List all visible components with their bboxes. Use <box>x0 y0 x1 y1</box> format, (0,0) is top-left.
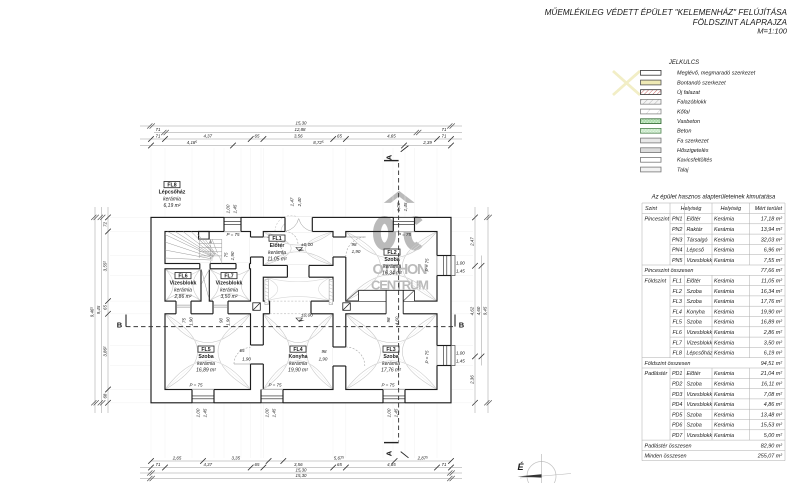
svg-text:FÖLDSZINT ALAPRAJZA: FÖLDSZINT ALAPRAJZA <box>693 17 788 27</box>
svg-text:Hőszigetelés: Hőszigetelés <box>677 148 709 154</box>
svg-text:1,90: 1,90 <box>189 317 194 326</box>
svg-text:16,89 m²: 16,89 m² <box>761 320 782 326</box>
svg-text:FL7: FL7 <box>224 273 233 279</box>
svg-text:75: 75 <box>224 252 229 258</box>
svg-text:Helyiség: Helyiség <box>681 206 702 212</box>
svg-text:21,04 m²: 21,04 m² <box>760 371 782 377</box>
svg-text:B: B <box>117 321 123 330</box>
svg-text:15,30: 15,30 <box>296 468 308 473</box>
svg-text:9,45: 9,45 <box>483 306 488 315</box>
svg-text:7,08 m²: 7,08 m² <box>764 392 782 398</box>
svg-text:7,55 m²: 7,55 m² <box>764 258 782 264</box>
svg-text:PN2: PN2 <box>672 227 683 233</box>
svg-text:32,03 m²: 32,03 m² <box>761 237 782 243</box>
svg-text:Kerámia: Kerámia <box>714 258 734 264</box>
svg-text:kerámia: kerámia <box>220 287 238 293</box>
svg-text:11,05 m²: 11,05 m² <box>761 279 782 285</box>
svg-text:68: 68 <box>103 393 108 398</box>
svg-text:FL3: FL3 <box>673 299 682 305</box>
svg-text:FL4: FL4 <box>673 309 682 315</box>
svg-text:Kerámia: Kerámia <box>714 217 734 223</box>
svg-text:6,19 m²: 6,19 m² <box>764 351 782 357</box>
svg-text:Mért terület: Mért terület <box>755 206 783 212</box>
svg-text:71: 71 <box>156 127 161 132</box>
svg-text:4,18⁵: 4,18⁵ <box>187 140 198 145</box>
svg-text:PD7: PD7 <box>672 433 683 439</box>
svg-text:3,50 m²: 3,50 m² <box>221 294 238 300</box>
svg-text:FL5: FL5 <box>673 320 683 326</box>
svg-text:2,40: 2,40 <box>297 197 302 207</box>
svg-text:M=1:100: M=1:100 <box>757 27 788 36</box>
svg-text:19,90 m²: 19,90 m² <box>761 309 782 315</box>
svg-text:FL8: FL8 <box>673 351 682 357</box>
svg-text:15,53 m²: 15,53 m² <box>761 423 782 429</box>
svg-text:JELKULCS: JELKULCS <box>668 60 699 66</box>
svg-text:71: 71 <box>156 134 161 139</box>
svg-text:Előtér: Előtér <box>270 243 285 249</box>
svg-text:Vizesblokk: Vizesblokk <box>687 392 713 398</box>
svg-text:Kerámia: Kerámia <box>714 392 734 398</box>
svg-text:Vizesblokk: Vizesblokk <box>687 258 713 264</box>
svg-text:PD5: PD5 <box>672 412 683 418</box>
svg-text:Kerámia: Kerámia <box>714 227 734 233</box>
svg-text:71: 71 <box>442 127 447 132</box>
svg-text:65: 65 <box>103 305 108 310</box>
svg-text:kerámia: kerámia <box>197 361 215 367</box>
svg-text:90: 90 <box>219 318 224 324</box>
svg-text:Kerámia: Kerámia <box>714 248 734 254</box>
svg-text:PD3: PD3 <box>672 392 683 398</box>
svg-text:Lépcső: Lépcső <box>687 248 705 254</box>
svg-text:Falazóblokk: Falazóblokk <box>677 100 707 106</box>
svg-text:8,72⁵: 8,72⁵ <box>313 140 324 145</box>
svg-text:Kavicsfeltöltés: Kavicsfeltöltés <box>677 158 712 164</box>
svg-text:2,86 m²: 2,86 m² <box>174 294 192 300</box>
svg-text:1,45: 1,45 <box>232 204 237 213</box>
svg-text:Kerámia: Kerámia <box>714 237 734 243</box>
svg-text:12,88: 12,88 <box>295 127 307 132</box>
svg-text:Kerámia: Kerámia <box>714 279 734 285</box>
svg-text:72: 72 <box>103 221 108 226</box>
svg-text:2,65: 2,65 <box>172 456 182 461</box>
svg-text:Kerámia: Kerámia <box>714 371 734 377</box>
svg-text:FL8: FL8 <box>167 182 176 188</box>
svg-text:PN3: PN3 <box>672 237 683 243</box>
svg-text:16,11 m²: 16,11 m² <box>761 382 782 388</box>
svg-text:255,07 m²: 255,07 m² <box>757 454 782 460</box>
svg-text:Vizesblokk: Vizesblokk <box>687 433 713 439</box>
svg-text:Kerámia: Kerámia <box>714 320 734 326</box>
svg-text:1,90: 1,90 <box>226 317 231 326</box>
svg-text:Kerámia: Kerámia <box>714 309 734 315</box>
svg-text:65: 65 <box>337 462 342 467</box>
svg-text:16,34 m²: 16,34 m² <box>761 289 782 295</box>
svg-text:98: 98 <box>321 349 327 354</box>
svg-text:PD4: PD4 <box>672 402 683 408</box>
svg-text:PN1: PN1 <box>672 217 683 223</box>
svg-text:Kerámia: Kerámia <box>714 299 734 305</box>
svg-text:Kerámia: Kerámia <box>714 351 734 357</box>
svg-text:PD2: PD2 <box>672 382 683 388</box>
svg-text:Társalgó: Társalgó <box>687 237 708 243</box>
svg-text:1,00: 1,00 <box>387 408 392 417</box>
svg-text:Vizesblokk: Vizesblokk <box>216 281 243 287</box>
svg-text:Kerámia: Kerámia <box>714 402 734 408</box>
svg-text:1,90: 1,90 <box>352 249 361 254</box>
svg-text:65: 65 <box>255 134 260 139</box>
svg-text:Pinceszint: Pinceszint <box>645 217 670 223</box>
svg-text:Padlástér: Padlástér <box>645 371 668 377</box>
svg-text:16,34 m²: 16,34 m² <box>382 270 402 276</box>
svg-text:FL1: FL1 <box>272 236 281 242</box>
svg-text:PD1: PD1 <box>672 371 683 377</box>
svg-text:1,45: 1,45 <box>403 202 408 211</box>
svg-text:3,50 m²: 3,50 m² <box>764 340 782 346</box>
svg-text:2,47: 2,47 <box>470 237 475 247</box>
svg-text:4,65: 4,65 <box>387 134 396 139</box>
svg-text:1,00: 1,00 <box>456 351 465 356</box>
svg-text:5,67⁵: 5,67⁵ <box>334 456 345 461</box>
svg-text:71: 71 <box>156 462 161 467</box>
svg-text:Szoba: Szoba <box>384 257 399 263</box>
svg-text:P = 75: P = 75 <box>190 383 203 388</box>
svg-text:Bontandó szerkezet: Bontandó szerkezet <box>677 80 726 86</box>
svg-text:Beton: Beton <box>677 129 691 135</box>
svg-text:Földszint: Földszint <box>645 279 667 285</box>
svg-text:2,39: 2,39 <box>422 140 432 145</box>
svg-text:FL6: FL6 <box>178 273 187 279</box>
svg-text:1,00: 1,00 <box>456 261 465 266</box>
svg-text:1,90: 1,90 <box>242 357 251 362</box>
svg-text:kerámia: kerámia <box>174 287 192 293</box>
svg-text:3,56: 3,56 <box>294 462 303 467</box>
svg-text:Kerámia: Kerámia <box>714 382 734 388</box>
svg-text:1,45: 1,45 <box>456 359 465 364</box>
svg-text:5,00 m²: 5,00 m² <box>764 433 782 439</box>
svg-text:Pinceszint összesen: Pinceszint összesen <box>645 268 694 274</box>
svg-text:MŰEMLÉKILEG VÉDETT ÉPÜLET "KEL: MŰEMLÉKILEG VÉDETT ÉPÜLET "KELEMENHÁZ" F… <box>545 7 788 17</box>
svg-text:FL2: FL2 <box>387 250 396 256</box>
svg-text:PD6: PD6 <box>672 423 683 429</box>
svg-text:1,45: 1,45 <box>456 269 465 274</box>
svg-text:Meglévő, megmaradó szerkezet: Meglévő, megmaradó szerkezet <box>677 71 756 77</box>
svg-text:P = 75: P = 75 <box>425 258 430 271</box>
svg-text:Szint: Szint <box>645 206 657 212</box>
svg-text:Szoba: Szoba <box>198 354 213 360</box>
svg-text:2,86 m²: 2,86 m² <box>763 330 782 336</box>
svg-text:P = 75: P = 75 <box>398 232 411 237</box>
svg-text:9,46⁵: 9,46⁵ <box>90 307 95 318</box>
svg-text:Helyiség: Helyiség <box>720 206 741 212</box>
svg-text:2,36: 2,36 <box>470 375 475 385</box>
svg-text:B: B <box>459 321 465 330</box>
svg-text:FL3: FL3 <box>386 347 395 353</box>
svg-text:Fa szerkezet: Fa szerkezet <box>677 138 709 144</box>
svg-text:65: 65 <box>239 348 245 353</box>
svg-text:Minden összesen: Minden összesen <box>645 454 687 460</box>
svg-text:Az épület hasznos alapterülete: Az épület hasznos alapterületeinek kimut… <box>651 195 776 201</box>
svg-text:77,66 m²: 77,66 m² <box>761 268 782 274</box>
svg-text:82,90 m²: 82,90 m² <box>761 443 782 449</box>
svg-text:Kerámia: Kerámia <box>714 412 734 418</box>
svg-text:1,90: 1,90 <box>230 251 235 260</box>
svg-text:FL7: FL7 <box>673 340 683 346</box>
svg-text:9,45: 9,45 <box>96 305 101 314</box>
svg-text:71: 71 <box>442 462 447 467</box>
svg-text:P = 75: P = 75 <box>269 383 282 388</box>
svg-text:4,60: 4,60 <box>476 306 481 315</box>
svg-text:Kerámia: Kerámia <box>714 423 734 429</box>
svg-text:Szoba: Szoba <box>687 412 702 418</box>
svg-text:Konyha: Konyha <box>288 354 307 360</box>
svg-text:4,37: 4,37 <box>204 134 213 139</box>
svg-text:98: 98 <box>386 317 391 323</box>
svg-text:4,37: 4,37 <box>204 462 213 467</box>
svg-text:15,30: 15,30 <box>296 473 308 478</box>
svg-text:Raktár: Raktár <box>687 227 703 233</box>
svg-text:Szoba: Szoba <box>687 289 702 295</box>
svg-text:P = 75: P = 75 <box>425 350 430 363</box>
svg-text:FL5: FL5 <box>201 347 210 353</box>
svg-text:3,55²: 3,55² <box>103 261 108 272</box>
svg-text:Vizesblokk: Vizesblokk <box>687 402 713 408</box>
svg-text:17,76 m²: 17,76 m² <box>761 299 782 305</box>
svg-text:13,48 m²: 13,48 m² <box>761 412 782 418</box>
svg-text:Szoba: Szoba <box>383 354 398 360</box>
svg-text:11,05 m²: 11,05 m² <box>267 256 287 262</box>
svg-text:A: A <box>385 450 394 456</box>
svg-text:Új falazat: Új falazat <box>677 89 700 96</box>
svg-text:Talaj: Talaj <box>677 167 689 173</box>
svg-text:FL1: FL1 <box>673 279 682 285</box>
svg-text:kerámia: kerámia <box>163 196 181 202</box>
svg-text:Kőfal: Kőfal <box>677 109 690 115</box>
svg-text:É: É <box>517 462 524 472</box>
svg-text:FL2: FL2 <box>673 289 682 295</box>
svg-text:Előtér: Előtér <box>687 371 701 377</box>
svg-text:FL6: FL6 <box>673 330 682 336</box>
svg-text:98: 98 <box>351 242 357 247</box>
svg-text:94,51 m²: 94,51 m² <box>761 361 782 367</box>
svg-text:Előtér: Előtér <box>687 279 701 285</box>
svg-text:Kerámia: Kerámia <box>714 330 734 336</box>
svg-text:3,35: 3,35 <box>232 456 241 461</box>
svg-text:Szoba: Szoba <box>687 423 702 429</box>
svg-text:kerámia: kerámia <box>268 250 286 256</box>
svg-text:Vasbeton: Vasbeton <box>677 119 700 125</box>
svg-text:Vizesblokk: Vizesblokk <box>687 330 713 336</box>
svg-text:Földszint összesen: Földszint összesen <box>645 361 691 367</box>
svg-text:PN5: PN5 <box>672 258 683 264</box>
svg-text:6,19 m²: 6,19 m² <box>164 203 181 209</box>
svg-text:6,96 m²: 6,96 m² <box>764 248 782 254</box>
svg-text:Vizesblokk: Vizesblokk <box>687 340 713 346</box>
svg-text:1,00: 1,00 <box>196 408 201 417</box>
svg-text:19,90 m²: 19,90 m² <box>288 367 308 373</box>
svg-text:Szoba: Szoba <box>687 382 702 388</box>
svg-text:Szoba: Szoba <box>687 299 702 305</box>
svg-text:15,30: 15,30 <box>296 120 308 125</box>
svg-text:Előtér: Előtér <box>687 217 701 223</box>
svg-text:P = 75: P = 75 <box>227 232 240 237</box>
svg-text:4,62: 4,62 <box>470 306 475 315</box>
svg-text:±0,00: ±0,00 <box>301 313 313 319</box>
svg-text:65: 65 <box>337 134 342 139</box>
svg-text:1,45: 1,45 <box>203 408 208 417</box>
svg-text:Lépcsőház: Lépcsőház <box>687 351 713 357</box>
svg-text:65: 65 <box>255 462 260 467</box>
svg-text:13,94 m²: 13,94 m² <box>761 227 782 233</box>
svg-text:3,56: 3,56 <box>294 134 303 139</box>
svg-text:16,89 m²: 16,89 m² <box>196 367 216 373</box>
svg-text:4,86 m²: 4,86 m² <box>764 402 782 408</box>
svg-text:2,87⁵: 2,87⁵ <box>417 456 429 461</box>
svg-text:75: 75 <box>182 318 187 324</box>
svg-text:Konyha: Konyha <box>687 309 705 315</box>
svg-text:1,00: 1,00 <box>265 408 270 417</box>
svg-text:PN4: PN4 <box>672 248 683 254</box>
svg-text:Kerámia: Kerámia <box>714 340 734 346</box>
svg-text:Padlástér összesen: Padlástér összesen <box>645 443 692 449</box>
svg-text:A: A <box>385 154 394 160</box>
svg-text:1,47: 1,47 <box>290 197 295 206</box>
svg-text:1,45: 1,45 <box>272 408 277 417</box>
svg-text:Lépcsőház: Lépcsőház <box>159 190 186 196</box>
svg-text:FL4: FL4 <box>293 347 302 353</box>
svg-text:±0,00: ±0,00 <box>301 242 313 248</box>
svg-text:1,90: 1,90 <box>319 357 328 362</box>
svg-text:Kerámia: Kerámia <box>714 289 734 295</box>
svg-text:4,65: 4,65 <box>387 462 396 467</box>
svg-text:Vizesblokk: Vizesblokk <box>170 281 197 287</box>
svg-text:71: 71 <box>442 134 447 139</box>
svg-text:1,45: 1,45 <box>394 408 399 417</box>
svg-text:Kerámia: Kerámia <box>714 433 734 439</box>
svg-text:3,86²: 3,86² <box>103 346 108 357</box>
svg-text:kerámia: kerámia <box>289 361 307 367</box>
svg-text:kerámia: kerámia <box>382 361 400 367</box>
svg-text:1,00: 1,00 <box>225 204 230 213</box>
svg-text:17,18 m²: 17,18 m² <box>761 217 782 223</box>
svg-text:P = 75: P = 75 <box>382 383 395 388</box>
svg-text:Szoba: Szoba <box>687 320 702 326</box>
